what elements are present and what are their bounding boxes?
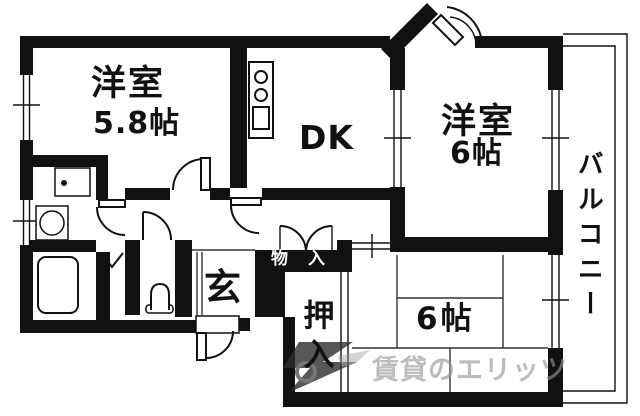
kitchen-counter bbox=[249, 62, 273, 138]
door-dk-hall bbox=[231, 198, 261, 233]
room-size-western2: 6帖 bbox=[450, 138, 503, 170]
door-toilet bbox=[143, 212, 171, 240]
angled-entry-wall bbox=[381, 3, 438, 60]
room-label-tatami: 6帖 bbox=[416, 303, 475, 336]
room-label-balcony: バルコニー bbox=[574, 150, 601, 325]
toilet bbox=[146, 284, 173, 313]
room-label-storage: 物入 bbox=[271, 251, 345, 269]
washing-machine-pan bbox=[55, 168, 90, 196]
floorplan: 洋室 5.8帖 DK 洋室 6帖 バルコニー 玄 物入 押入 6帖 賃貸のエリッ… bbox=[0, 0, 640, 416]
window-right-upper bbox=[542, 90, 569, 190]
room-size-western1: 5.8帖 bbox=[93, 108, 180, 140]
room-label-western1: 洋室 bbox=[91, 66, 165, 103]
door-western1 bbox=[173, 158, 210, 190]
closet-fusuma bbox=[341, 272, 348, 392]
stove-burner-icon bbox=[255, 89, 267, 101]
door-washroom bbox=[97, 200, 125, 235]
kitchen-sink-icon bbox=[253, 107, 269, 129]
watermark-text: 賃貸のエリッツ bbox=[372, 348, 568, 387]
bathtub bbox=[38, 257, 78, 313]
front-door bbox=[196, 316, 239, 360]
room-label-dk: DK bbox=[299, 121, 354, 156]
room-label-entrance: 玄 bbox=[204, 269, 241, 308]
sliding-door-dk-western2 bbox=[384, 90, 411, 187]
washbasin bbox=[36, 206, 68, 240]
room-label-closet: 押入 bbox=[299, 299, 332, 377]
angled-top-door bbox=[433, 7, 482, 45]
window-right-lower bbox=[542, 255, 569, 348]
window-left-upper bbox=[13, 75, 40, 140]
stove-burner-icon bbox=[255, 71, 267, 83]
